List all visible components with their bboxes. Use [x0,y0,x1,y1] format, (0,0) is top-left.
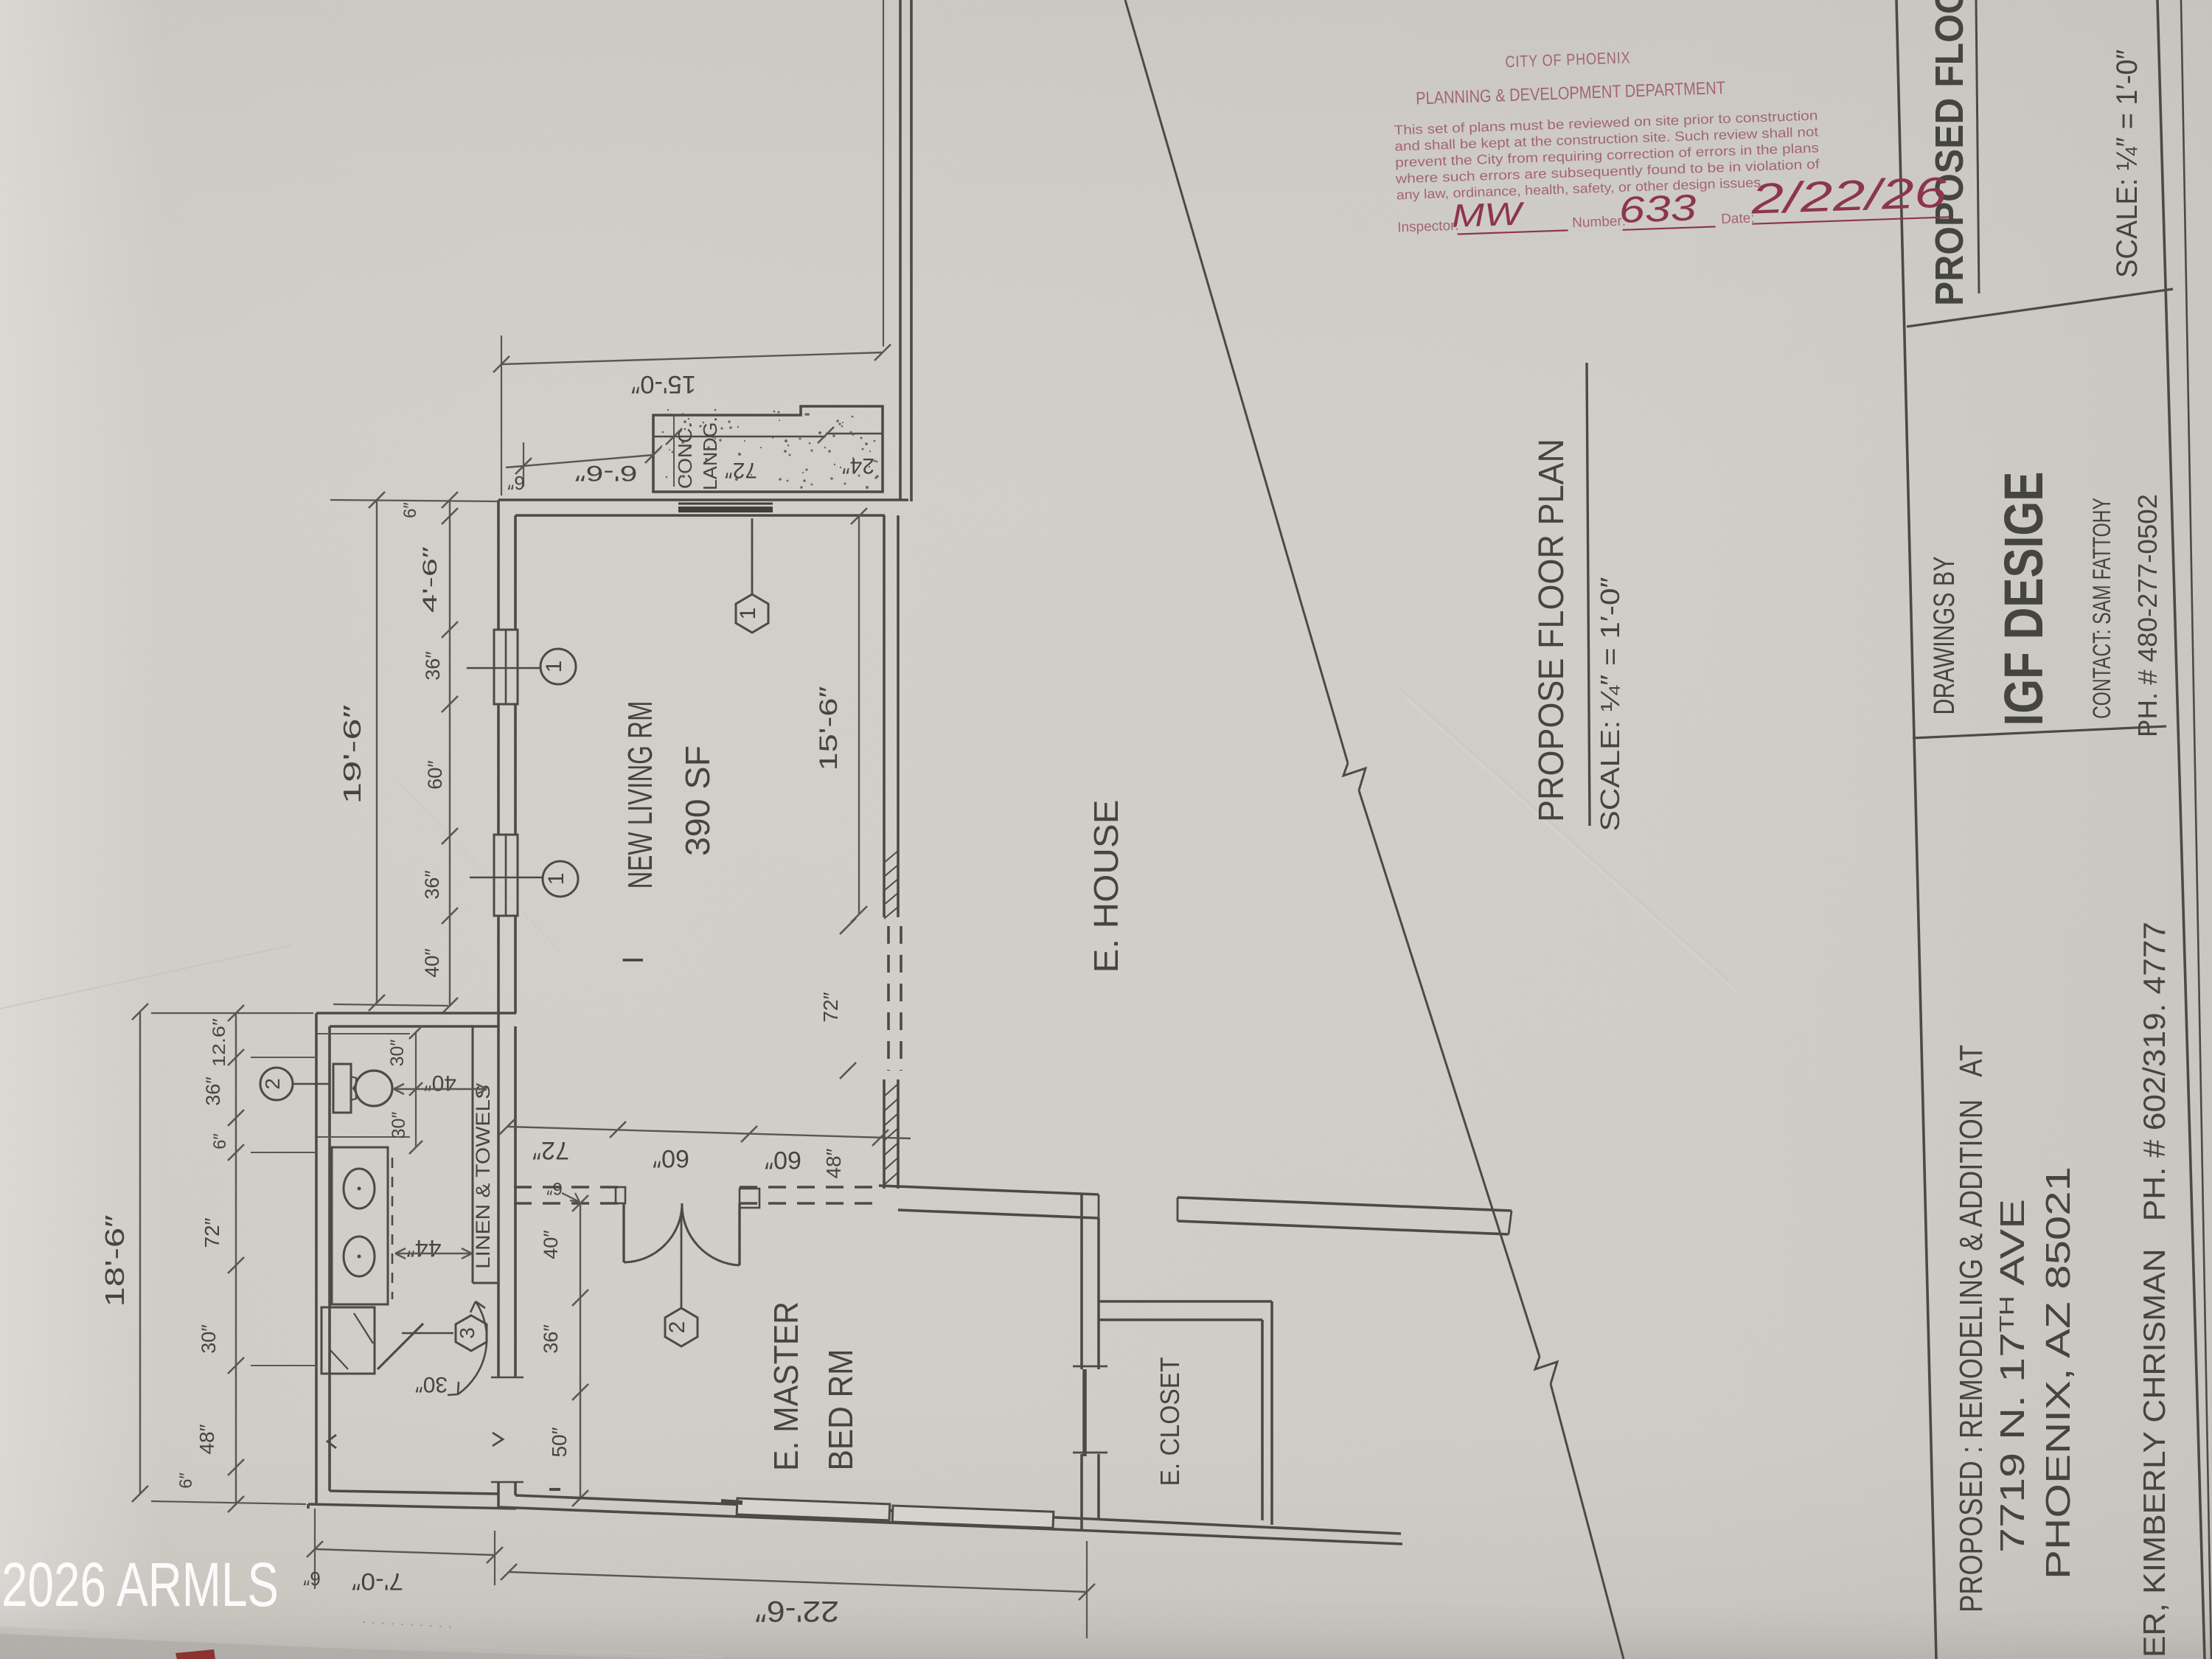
svg-text:2026 ARMLS: 2026 ARMLS [1,1550,279,1619]
svg-text:NER, KIMBERLY CHRISMAN PH. #: NER, KIMBERLY CHRISMAN PH. # 602/319. 47… [2137,922,2171,1659]
svg-text:I: I [617,956,650,964]
svg-text:30″: 30″ [198,1324,220,1354]
svg-text:60″: 60″ [653,1144,689,1172]
svg-text:22'-6″: 22'-6″ [755,1595,839,1627]
svg-text:NEW LIVING RM: NEW LIVING RM [621,701,659,889]
svg-text:6″: 6″ [546,1178,563,1198]
svg-text:40″: 40″ [424,1071,456,1095]
svg-text:7'-0″: 7'-0″ [352,1568,403,1595]
svg-text:E. CLOSET: E. CLOSET [1155,1357,1185,1486]
svg-text:PROPOSED : REMODELING & ADDITI: PROPOSED : REMODELING & ADDITION AT [1953,1045,1989,1613]
svg-text:3: 3 [456,1327,479,1339]
svg-text:PHOENIX, AZ 85021: PHOENIX, AZ 85021 [2039,1166,2077,1579]
svg-text:4'-6″: 4'-6″ [419,546,441,613]
svg-text:6″: 6″ [210,1133,230,1150]
svg-text:1: 1 [736,608,760,620]
svg-text:18'-6″: 18'-6″ [100,1214,130,1307]
svg-text:6″: 6″ [176,1472,196,1489]
svg-text:LINEN & TOWELS: LINEN & TOWELS [472,1085,494,1269]
svg-text:MW: MW [1451,195,1526,234]
svg-text:40″: 40″ [540,1230,562,1259]
svg-text:30″: 30″ [389,1112,409,1139]
svg-text:36″: 36″ [540,1324,562,1354]
svg-text:CONTACT: SAM FATTOHY: CONTACT: SAM FATTOHY [2088,498,2116,719]
svg-text:1: 1 [544,873,568,886]
svg-text:12.6″: 12.6″ [209,1018,229,1067]
svg-text:PROPOSE FLOOR PLAN: PROPOSE FLOOR PLAN [1532,439,1571,822]
svg-text:6″: 6″ [303,1568,321,1590]
svg-text:Number:: Number: [1572,214,1627,232]
svg-text:60″: 60″ [765,1146,801,1174]
svg-text:LANDG.: LANDG. [699,417,721,490]
svg-text:6'-6″: 6'-6″ [574,461,638,485]
svg-text:E. MASTER: E. MASTER [767,1301,805,1471]
svg-text:72″: 72″ [201,1217,223,1248]
svg-text:72″: 72″ [819,992,842,1022]
svg-text:SCALE: ¼″ = 1′-0″: SCALE: ¼″ = 1′-0″ [1595,577,1625,831]
svg-text:Date:: Date: [1721,211,1755,228]
svg-text:15'-0″: 15'-0″ [631,370,696,398]
svg-text:60″: 60″ [424,760,446,790]
svg-text:BED RM: BED RM [821,1349,860,1471]
svg-text:44″: 44″ [407,1235,442,1262]
svg-text:15'-6″: 15'-6″ [815,686,843,771]
svg-text:30″: 30″ [415,1372,448,1397]
svg-text:72″: 72″ [532,1136,569,1164]
svg-text:633: 633 [1618,187,1697,231]
svg-text:40″: 40″ [421,948,443,978]
svg-text:6″: 6″ [400,502,420,518]
svg-text:2: 2 [261,1078,284,1090]
svg-text:19'-6″: 19'-6″ [338,704,366,804]
svg-text:2: 2 [665,1321,689,1334]
svg-text:72″: 72″ [725,458,757,482]
svg-text:48″: 48″ [822,1148,845,1178]
svg-text:36″: 36″ [422,651,444,681]
svg-text:PROPOSED FLOOR PLAN: PROPOSED FLOOR PLAN [1927,0,1972,306]
svg-text:2/22/26: 2/22/26 [1750,168,1948,223]
svg-text:48″: 48″ [195,1424,218,1454]
svg-text:50″: 50″ [548,1427,571,1457]
svg-text:390 SF: 390 SF [678,745,717,856]
svg-text:1: 1 [542,661,566,673]
svg-text:IGF DESIGE: IGF DESIGE [1993,472,2054,726]
svg-text:30″: 30″ [387,1040,408,1067]
svg-text:Inspector:: Inspector: [1397,218,1459,236]
svg-text:DRAWINGS BY: DRAWINGS BY [1928,557,1961,715]
svg-text:6″: 6″ [507,472,525,494]
svg-text:36″: 36″ [421,870,443,900]
svg-text:E. HOUSE: E. HOUSE [1087,800,1125,973]
svg-text:PH. # 480-277-0502: PH. # 480-277-0502 [2132,494,2163,737]
svg-text:7719 N. 17TH AVE: 7719 N. 17TH AVE [1993,1199,2031,1553]
svg-text:36″: 36″ [202,1077,224,1106]
svg-text:SCALE: ¼″ = 1′-0″: SCALE: ¼″ = 1′-0″ [2111,49,2143,278]
svg-text:24″: 24″ [842,453,874,478]
